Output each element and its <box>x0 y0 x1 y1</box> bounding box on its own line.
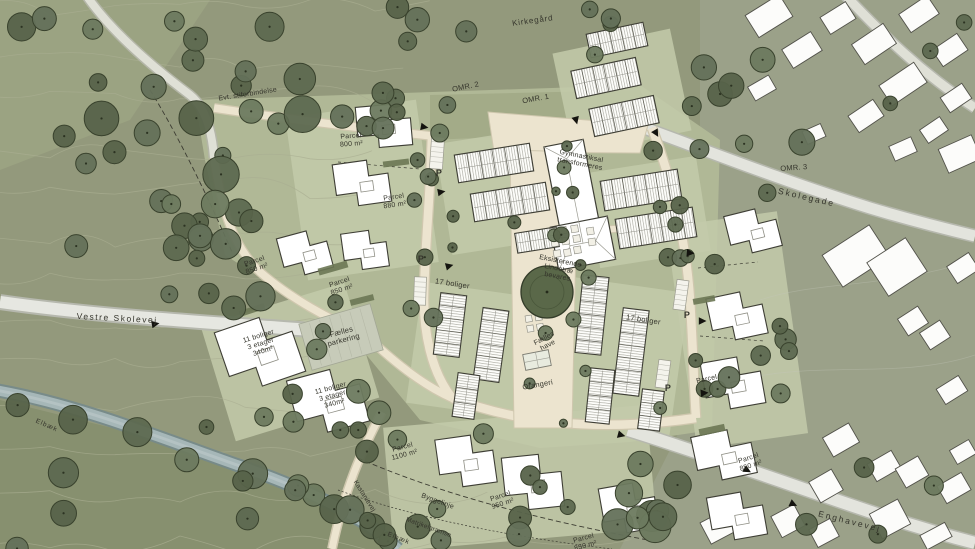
tree-center-dot <box>195 117 197 119</box>
tree-center-dot <box>676 484 678 486</box>
tree-center-dot <box>801 141 803 143</box>
tree-center-dot <box>760 354 762 356</box>
linden-tree-center <box>546 291 549 294</box>
tree-center-dot <box>252 473 254 475</box>
tree-center-dot <box>933 484 935 486</box>
tree-center-dot <box>205 426 207 428</box>
tree-center-dot <box>225 243 227 245</box>
tree-center-dot <box>382 92 384 94</box>
tree-center-dot <box>153 86 155 88</box>
tree <box>386 0 408 18</box>
site-plan-map: KirkegårdEvt. stiforbindelseOMR. 2OMR. 1… <box>0 0 975 549</box>
tree-center-dot <box>378 412 380 414</box>
tree-center-dot <box>639 463 641 465</box>
tree-center-dot <box>367 519 369 521</box>
tree-center-dot <box>766 192 768 194</box>
tree-center-dot <box>62 472 64 474</box>
tree-center-dot <box>194 38 196 40</box>
tree-center-dot <box>628 492 630 494</box>
tree-center-dot <box>863 466 865 468</box>
tree-center-dot <box>62 512 64 514</box>
tree-center-dot <box>780 392 782 394</box>
tree-center-dot <box>616 523 618 525</box>
tree-center-dot <box>242 480 244 482</box>
tree-center-dot <box>465 30 467 32</box>
tree-center-dot <box>410 307 412 309</box>
tree-center-dot <box>341 115 343 117</box>
tree-center-dot <box>730 85 732 87</box>
tree-center-dot <box>238 211 240 213</box>
tree-center-dot <box>349 509 351 511</box>
tree-center-dot <box>220 173 222 175</box>
parking-strip <box>414 277 427 305</box>
map-label-p3: P <box>684 310 690 320</box>
tree-center-dot <box>636 517 638 519</box>
tree-center-dot <box>396 6 398 8</box>
tree-center-dot <box>667 256 669 258</box>
tree-center-dot <box>519 516 521 518</box>
tree-center-dot <box>416 19 418 21</box>
tree-center-dot <box>208 292 210 294</box>
tree-center-dot <box>446 104 448 106</box>
map-label-omr3: OMR. 3 <box>780 162 808 173</box>
tree-center-dot <box>610 17 612 19</box>
tree-center-dot <box>396 111 398 113</box>
tree-center-dot <box>416 159 418 161</box>
tree-center-dot <box>173 20 175 22</box>
map-label-p2: P <box>418 254 424 264</box>
tree-center-dot <box>805 523 807 525</box>
tree-center-dot <box>322 330 324 332</box>
tree-center-dot <box>717 388 719 390</box>
tree-center-dot <box>714 263 716 265</box>
tree-center-dot <box>662 516 664 518</box>
tree-center-dot <box>199 221 201 223</box>
tree-center-dot <box>555 190 557 192</box>
tree-center-dot <box>695 359 697 361</box>
row-house <box>585 368 615 424</box>
tree-center-dot <box>92 28 94 30</box>
tree-center-dot <box>788 350 790 352</box>
tree-center-dot <box>333 508 335 510</box>
tree-center-dot <box>963 21 965 23</box>
tree-center-dot <box>889 102 891 104</box>
tree-center-dot <box>268 26 270 28</box>
tree-center-dot <box>63 135 65 137</box>
tree-center-dot <box>21 26 23 28</box>
tree-center-dot <box>75 245 77 247</box>
tree-center-dot <box>233 307 235 309</box>
tree-center-dot <box>588 276 590 278</box>
tree-center-dot <box>594 54 596 56</box>
tree-center-dot <box>380 110 382 112</box>
tree-center-dot <box>779 325 781 327</box>
tree-center-dot <box>394 97 396 99</box>
tree-center-dot <box>728 376 730 378</box>
tree-center-dot <box>382 127 384 129</box>
tree-center-dot <box>192 59 194 61</box>
tree-center-dot <box>784 338 786 340</box>
tree-center-dot <box>250 220 252 222</box>
tree-center-dot <box>563 166 565 168</box>
tree-center-dot <box>301 113 303 115</box>
tree-center-dot <box>691 105 693 107</box>
tree-center-dot <box>929 50 931 52</box>
tree-center-dot <box>240 85 242 87</box>
tree-center-dot <box>562 422 564 424</box>
tree-center-dot <box>186 459 188 461</box>
tree-center-dot <box>292 393 294 395</box>
tree-center-dot <box>136 431 138 433</box>
tree-center-dot <box>316 348 318 350</box>
map-label-p1: P <box>436 168 442 178</box>
tree-center-dot <box>175 247 177 249</box>
tree-center-dot <box>245 70 247 72</box>
tree-center-dot <box>277 123 279 125</box>
tree-center-dot <box>113 151 115 153</box>
tree-center-dot <box>589 8 591 10</box>
tree-center-dot <box>560 234 562 236</box>
tree-center-dot <box>518 533 520 535</box>
tree-center-dot <box>292 421 294 423</box>
tree-center-dot <box>529 474 531 476</box>
tree-center-dot <box>572 318 574 320</box>
tree-center-dot <box>339 429 341 431</box>
tree-center-dot <box>357 429 359 431</box>
tree-center-dot <box>567 506 569 508</box>
tree-center-dot <box>299 78 301 80</box>
tree-center-dot <box>698 148 700 150</box>
tree-center-dot <box>259 295 261 297</box>
tree-center-dot <box>407 40 409 42</box>
tree-center-dot <box>199 235 201 237</box>
tree-center-dot <box>214 203 216 205</box>
tree-center-dot <box>294 489 296 491</box>
tree-center-dot <box>313 494 315 496</box>
tree-center-dot <box>659 206 661 208</box>
tree-center-dot <box>168 293 170 295</box>
tree-center-dot <box>413 199 415 201</box>
tree-center-dot <box>250 110 252 112</box>
tree-center-dot <box>432 316 434 318</box>
tree-center-dot <box>572 191 574 193</box>
tree-center-dot <box>482 433 484 435</box>
tree-center-dot <box>679 204 681 206</box>
tree-center-dot <box>452 215 454 217</box>
tree-center-dot <box>72 419 74 421</box>
tree-center-dot <box>451 246 453 248</box>
tree-center-dot <box>196 257 198 259</box>
tree-center-dot <box>357 390 359 392</box>
tree-center-dot <box>17 404 19 406</box>
tree-center-dot <box>170 203 172 205</box>
tree-center-dot <box>85 162 87 164</box>
tree-center-dot <box>652 150 654 152</box>
tree-center-dot <box>396 438 398 440</box>
tree-center-dot <box>703 388 705 390</box>
tree-center-dot <box>659 407 661 409</box>
tree-center-dot <box>427 175 429 177</box>
tree-center-dot <box>584 370 586 372</box>
tree-center-dot <box>440 539 442 541</box>
map-label-p4: P <box>665 383 671 393</box>
tree-center-dot <box>146 132 148 134</box>
tree-center-dot <box>383 534 385 536</box>
tree-center-dot <box>513 221 515 223</box>
tree-center-dot <box>703 66 705 68</box>
tree-center-dot <box>334 301 336 303</box>
tree-center-dot <box>263 416 265 418</box>
site-plan-svg: KirkegårdEvt. stiforbindelseOMR. 2OMR. 1… <box>0 0 975 549</box>
tree-center-dot <box>246 518 248 520</box>
tree-center-dot <box>762 59 764 61</box>
tree-center-dot <box>365 125 367 127</box>
tree-center-dot <box>366 450 368 452</box>
tree-center-dot <box>97 81 99 83</box>
tree-center-dot <box>43 18 45 20</box>
tree-center-dot <box>539 486 541 488</box>
tree-center-dot <box>566 145 568 147</box>
tree-center-dot <box>436 508 438 510</box>
tree-center-dot <box>674 223 676 225</box>
tree-center-dot <box>100 117 102 119</box>
tree-center-dot <box>439 132 441 134</box>
tree-center-dot <box>183 225 185 227</box>
tree-center-dot <box>743 143 745 145</box>
map-label-parcel-800: Parcel800 m² <box>339 132 363 148</box>
